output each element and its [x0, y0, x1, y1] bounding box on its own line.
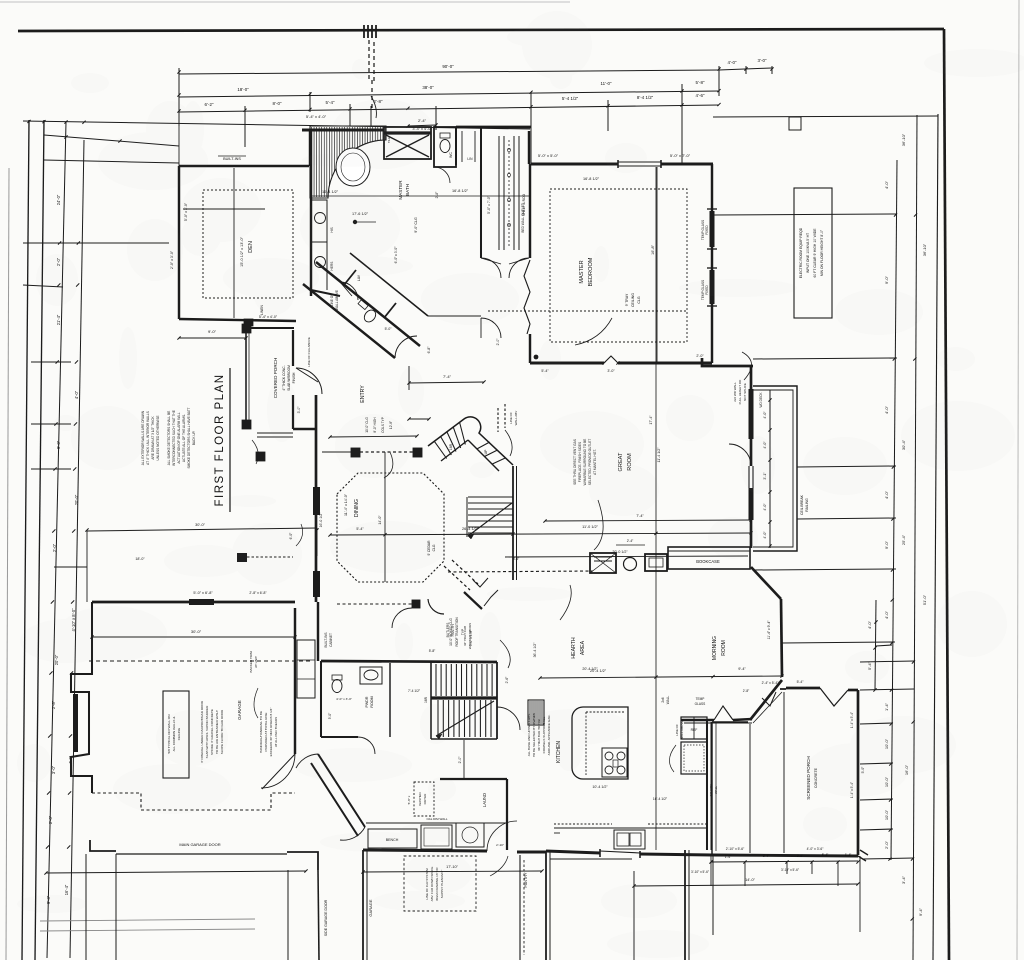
svg-text:MASTER: MASTER: [398, 180, 403, 200]
svg-text:10’-0”: 10’-0”: [884, 809, 889, 820]
svg-text:18’-0”: 18’-0”: [237, 87, 249, 92]
svg-text:16’-4”: 16’-4”: [64, 884, 69, 895]
svg-text:4’-0”: 4’-0”: [884, 405, 889, 414]
svg-text:BACK UP.: BACK UP.: [192, 431, 196, 446]
svg-text:10’-4 1/2”: 10’-4 1/2”: [592, 785, 608, 789]
svg-text:11’-0 1/2”: 11’-0 1/2”: [582, 525, 598, 529]
svg-text:36’-10”: 36’-10”: [922, 243, 927, 256]
svg-text:51’-0”: 51’-0”: [922, 594, 927, 605]
svg-text:2’-6”: 2’-6”: [797, 854, 804, 858]
svg-text:REF: REF: [691, 728, 698, 732]
svg-text:4’-0”: 4’-0”: [884, 610, 889, 619]
svg-text:DEN: DEN: [248, 241, 254, 253]
svg-text:3’-0”: 3’-0”: [607, 369, 615, 373]
svg-text:MORNING: MORNING: [712, 636, 718, 660]
svg-text:16R: 16R: [424, 696, 428, 703]
svg-text:WC: WC: [449, 152, 453, 158]
svg-text:WD DECK: WD DECK: [759, 392, 763, 408]
svg-text:6’-2”: 6’-2”: [205, 102, 214, 107]
svg-text:5’-4”: 5’-4”: [822, 853, 829, 857]
svg-text:11’-4” x 14’-0”: 11’-4” x 14’-0”: [344, 493, 348, 516]
svg-text:LINE OF: LINE OF: [330, 294, 334, 306]
svg-text:18’-0”: 18’-0”: [135, 557, 145, 561]
svg-text:LINE OF: LINE OF: [675, 724, 679, 736]
svg-text:6’-8”: 6’-8”: [427, 347, 431, 354]
svg-text:INPUT ONE 100KVA 5’ HT: INPUT ONE 100KVA 5’ HT: [806, 233, 810, 273]
svg-text:5’-8”: 5’-8”: [696, 80, 705, 85]
svg-text:PANTRY: PANTRY: [524, 872, 528, 888]
svg-text:21’-4”: 21’-4”: [56, 314, 61, 325]
svg-text:16’-8 1/2”: 16’-8 1/2”: [583, 177, 600, 181]
svg-text:9’-0”: 9’-0”: [884, 275, 889, 284]
svg-text:WALL: WALL: [666, 695, 670, 704]
svg-text:CLG: CLG: [637, 296, 641, 303]
svg-text:4’-0”: 4’-0”: [884, 490, 889, 499]
svg-text:MASTER: MASTER: [579, 260, 585, 283]
svg-text:BUILT-INS: BUILT-INS: [324, 633, 328, 648]
svg-text:90’-0”: 90’-0”: [442, 64, 454, 69]
svg-text:GARAGE: GARAGE: [368, 899, 373, 916]
svg-text:BED WALL OUTLET: BED WALL OUTLET: [521, 203, 525, 232]
svg-text:5’-4”: 5’-4”: [326, 100, 335, 105]
svg-text:4’-0”: 4’-0”: [884, 180, 889, 189]
svg-text:HEARTH: HEARTH: [571, 637, 577, 658]
svg-text:WASHER: WASHER: [418, 792, 422, 806]
svg-text:4’-0”: 4’-0”: [74, 390, 79, 399]
svg-text:2’-0”: 2’-0”: [458, 757, 462, 764]
svg-text:5’-4”: 5’-4”: [797, 680, 804, 684]
svg-text:ROOM: ROOM: [370, 696, 374, 707]
svg-text:GLASS: GLASS: [695, 702, 706, 706]
svg-text:GARAGE: GARAGE: [237, 700, 242, 720]
svg-text:PROVIDED AT TOTAL RISE: PROVIDED AT TOTAL RISE: [264, 713, 268, 752]
svg-text:5’-0” x 5’-0”: 5’-0” x 5’-0”: [538, 153, 559, 158]
svg-text:ACTUATION OF ONE ALARM WILL: ACTUATION OF ONE ALARM WILL: [177, 412, 181, 464]
svg-text:5’-0” x 7’-0”: 5’-0” x 7’-0”: [670, 153, 691, 158]
svg-text:4’-0”: 4’-0”: [728, 60, 737, 65]
svg-text:4’-0”: 4’-0”: [763, 503, 767, 511]
svg-text:5’-4” x 4’-0”: 5’-4” x 4’-0”: [259, 315, 278, 319]
svg-text:LINE OF CLG ABOVE: LINE OF CLG ABOVE: [307, 337, 311, 367]
svg-text:4’-6”: 4’-6”: [696, 93, 705, 98]
svg-text:25’-4”: 25’-4”: [901, 534, 906, 545]
svg-text:30’-0”: 30’-0”: [195, 523, 205, 527]
svg-text:1’-4”: 1’-4”: [845, 853, 852, 857]
svg-text:5’-4 1/2”: 5’-4 1/2”: [562, 96, 579, 101]
svg-text:CEIL BREAK: CEIL BREAK: [800, 494, 804, 515]
svg-text:11’-4 1/2”: 11’-4 1/2”: [657, 447, 661, 463]
svg-text:20’-4 1/2”: 20’-4 1/2”: [582, 667, 598, 671]
svg-text:16’-0 1/2”: 16’-0 1/2”: [319, 512, 323, 528]
svg-text:TEMP: TEMP: [696, 697, 705, 701]
svg-text:AT 4” THICK / ALL INTERIOR WAL: AT 4” THICK / ALL INTERIOR WALLS: [146, 411, 150, 465]
svg-text:5’-0”: 5’-0”: [385, 327, 392, 331]
svg-text:PWDR: PWDR: [365, 696, 369, 707]
svg-text:2’-8”: 2’-8”: [435, 192, 439, 199]
svg-text:2x6: 2x6: [661, 697, 665, 702]
svg-text:36’-10”: 36’-10”: [901, 133, 906, 146]
svg-text:2’-4” x 5’-4”: 2’-4” x 5’-4”: [762, 681, 779, 685]
svg-text:5’-8”: 5’-8”: [429, 649, 436, 653]
svg-text:BATH: BATH: [405, 184, 410, 196]
svg-text:SMOKE DETECTORS SHALL HAVE BAT: SMOKE DETECTORS SHALL HAVE BATT: [187, 407, 191, 468]
svg-text:1’-4” x 5’-4”: 1’-4” x 5’-4”: [850, 712, 854, 728]
svg-text:ROOF TRANSITION: ROOF TRANSITION: [455, 617, 459, 647]
svg-text:14’-0”: 14’-0”: [745, 878, 755, 882]
svg-text:2’-0”: 2’-0”: [696, 354, 704, 358]
svg-text:FIRST FLOOR PLAN: FIRST FLOOR PLAN: [214, 373, 226, 506]
svg-text:ROOM: ROOM: [721, 640, 727, 656]
svg-text:FIXED: FIXED: [705, 225, 709, 235]
svg-text:INTERCONNECTED SUCH THAT THE: INTERCONNECTED SUCH THAT THE: [172, 410, 176, 466]
svg-text:EXCEEDS 30” MAX RISERS 8 1/4”: EXCEEDS 30” MAX RISERS 8 1/4”: [269, 708, 273, 757]
svg-text:BUILT-INS: BUILT-INS: [223, 157, 241, 161]
svg-text:UNLESS NOTED OTHERWISE: UNLESS NOTED OTHERWISE: [156, 416, 160, 461]
svg-text:3’-0”: 3’-0”: [758, 58, 767, 63]
svg-text:RAILING: RAILING: [805, 498, 809, 512]
svg-text:2’-10” x 5’-6”: 2’-10” x 5’-6”: [726, 847, 745, 851]
svg-text:3’-10” x 5’-6”: 3’-10” x 5’-6”: [781, 868, 799, 872]
svg-text:2’-8”: 2’-8”: [743, 689, 749, 693]
svg-text:2’-8”: 2’-8”: [51, 700, 56, 709]
svg-text:AT ALL PER TREADS: AT ALL PER TREADS: [274, 717, 278, 747]
svg-text:8’-4 1/2”: 8’-4 1/2”: [637, 95, 654, 100]
svg-text:1’-4”: 1’-4”: [725, 855, 732, 859]
svg-text:20’-0”: 20’-0”: [74, 494, 79, 505]
svg-text:38’-0”: 38’-0”: [422, 85, 434, 90]
svg-text:3’-0”: 3’-0”: [297, 407, 301, 414]
svg-text:WALL ABV: WALL ABV: [514, 411, 518, 426]
svg-text:ARE DRAWN AT 3 1/2” THICK: ARE DRAWN AT 3 1/2” THICK: [151, 415, 155, 459]
svg-text:3’-4”: 3’-4”: [763, 854, 770, 858]
svg-text:5’-4” x 4’-0”: 5’-4” x 4’-0”: [306, 114, 327, 119]
svg-text:2’-0”: 2’-0”: [52, 543, 57, 552]
svg-text:16’-4 1/2”: 16’-4 1/2”: [653, 797, 667, 801]
svg-text:4’-0” x 3’-0”: 4’-0” x 3’-0”: [336, 697, 352, 701]
svg-text:W/GLASS DOORS: W/GLASS DOORS: [468, 623, 472, 649]
svg-text:9’-4”: 9’-4”: [918, 907, 923, 916]
svg-text:60 FT CLEAR 9’ HIGH 10’ WIDE: 60 FT CLEAR 9’ HIGH 10’ WIDE: [813, 228, 817, 278]
svg-text:BACKER TRIM: BACKER TRIM: [249, 651, 253, 673]
svg-text:16’-8”: 16’-8”: [651, 244, 655, 254]
svg-text:DINING: DINING: [354, 499, 360, 517]
svg-text:ELECTRIC ROOM EQUIP REQD: ELECTRIC ROOM EQUIP REQD: [799, 227, 803, 278]
svg-text:1’-4”: 1’-4”: [884, 702, 889, 711]
svg-text:7’-4”: 7’-4”: [636, 514, 644, 518]
svg-text:3’-4”: 3’-4”: [513, 557, 520, 561]
svg-text:5’-0”: 5’-0”: [328, 713, 332, 719]
svg-text:17’-4”: 17’-4”: [649, 415, 653, 425]
svg-text:3’-10” x 5’-6”: 3’-10” x 5’-6”: [691, 870, 709, 874]
svg-text:BUTLERS: BUTLERS: [446, 623, 450, 638]
svg-text:16’-8 1/2”: 16’-8 1/2”: [452, 189, 469, 193]
svg-text:LIN: LIN: [467, 157, 473, 161]
svg-text:AT UNIT: AT UNIT: [254, 656, 258, 668]
svg-text:ENTRY: ENTRY: [360, 385, 366, 403]
svg-text:11’-0”: 11’-0”: [600, 81, 612, 86]
svg-text:4’-0” x 3’-6”: 4’-0” x 3’-6”: [807, 847, 824, 851]
svg-text:3’-0”: 3’-0”: [51, 765, 56, 774]
svg-text:CABINET: CABINET: [329, 633, 333, 647]
svg-text:2’-8” x 6’-8”: 2’-8” x 6’-8”: [249, 591, 266, 595]
svg-text:4’-0”: 4’-0”: [763, 411, 767, 419]
svg-text:SIDE GARAGE DOOR: SIDE GARAGE DOOR: [324, 899, 328, 936]
svg-text:ACTUATE ALL OF THE ALARMS.: ACTUATE ALL OF THE ALARMS.: [182, 414, 186, 462]
svg-text:9’ TRAY: 9’ TRAY: [625, 293, 629, 306]
svg-text:NOT SPLICE: NOT SPLICE: [743, 383, 747, 401]
svg-text:3’-4”: 3’-4”: [901, 875, 906, 884]
svg-text:2’-4”: 2’-4”: [627, 539, 634, 543]
svg-text:BOOKCASE: BOOKCASE: [696, 559, 720, 564]
svg-text:2’-6”: 2’-6”: [505, 677, 509, 684]
svg-text:9’-0”: 9’-0”: [56, 440, 61, 449]
svg-text:42” HIGH CAB: 42” HIGH CAB: [463, 626, 467, 646]
svg-text:7’-4”: 7’-4”: [443, 374, 452, 379]
svg-text:5’-8” x: 5’-8” x: [407, 795, 411, 804]
svg-text:MAIN GARAGE DOOR: MAIN GARAGE DOOR: [179, 842, 220, 847]
svg-text:5’-0” x 6’-8”: 5’-0” x 6’-8”: [193, 591, 213, 595]
svg-text:DRYER: DRYER: [423, 793, 427, 805]
svg-text:HANDRAIL/HANDRAIL TO BE: HANDRAIL/HANDRAIL TO BE: [259, 711, 263, 753]
svg-text:2’-0”: 2’-0”: [496, 339, 500, 346]
svg-text:9’-0”: 9’-0”: [884, 540, 889, 549]
svg-text:LAUND: LAUND: [482, 793, 487, 807]
svg-text:CEILING: CEILING: [631, 293, 635, 307]
svg-text:PANTRY: PANTRY: [451, 623, 455, 637]
svg-text:4’-0”: 4’-0”: [763, 531, 767, 539]
svg-text:30’-0”: 30’-0”: [191, 629, 202, 634]
svg-text:AREA: AREA: [580, 640, 586, 655]
svg-text:9’-0” CLG: 9’-0” CLG: [414, 217, 418, 233]
svg-text:WALL ABOVE: WALL ABOVE: [335, 290, 339, 310]
svg-text:UP: UP: [484, 449, 488, 454]
svg-text:36’-4 1/2”: 36’-4 1/2”: [533, 642, 537, 658]
svg-text:4’-0”: 4’-0”: [867, 620, 872, 629]
svg-text:8’-0”: 8’-0”: [273, 101, 282, 106]
svg-text:5’-0” x 7’-0”: 5’-0” x 7’-0”: [487, 195, 491, 214]
svg-text:WALL ABOVE: WALL ABOVE: [680, 721, 684, 740]
svg-text:9’-4”: 9’-4”: [738, 667, 746, 671]
svg-text:ALL SMOKE DETECTORS SHALL BE: ALL SMOKE DETECTORS SHALL BE: [167, 411, 171, 465]
svg-text:LINE OF: LINE OF: [509, 412, 513, 424]
svg-text:2’-0”: 2’-0”: [48, 815, 53, 824]
svg-text:2x6 WD WALL: 2x6 WD WALL: [733, 382, 737, 402]
svg-text:2’-10”: 2’-10”: [496, 843, 504, 847]
svg-text:FINISH: FINISH: [292, 372, 296, 383]
svg-text:26’-4 1/2”: 26’-4 1/2”: [462, 527, 479, 531]
svg-text:11’-4” x 9’-4”: 11’-4” x 9’-4”: [767, 621, 771, 640]
svg-text:9’-0”: 9’-0”: [208, 329, 217, 334]
svg-text:MIN ON FLOOR HEIGHT 8’-0”: MIN ON FLOOR HEIGHT 8’-0”: [820, 230, 824, 276]
svg-text:16R: 16R: [449, 443, 453, 450]
svg-text:FULL HEIGHT DO: FULL HEIGHT DO: [738, 379, 742, 404]
svg-text:2’-0”: 2’-0”: [884, 840, 889, 849]
svg-text:24’-0”: 24’-0”: [56, 194, 61, 205]
svg-text:7’-4 1/2”: 7’-4 1/2”: [408, 689, 420, 693]
